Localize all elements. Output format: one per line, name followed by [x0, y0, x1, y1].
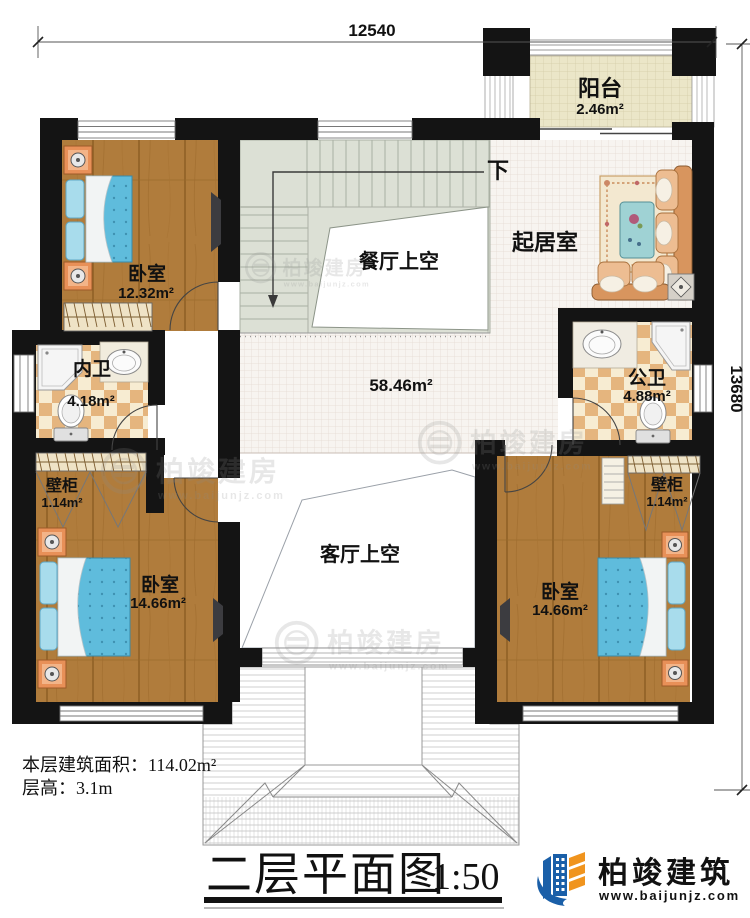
brand-url: www.baijunjz.com [598, 888, 740, 903]
brand-logo: 柏竣建筑 www.baijunjz.com [537, 852, 740, 906]
label-bath-private-area: 4.18m² [67, 393, 115, 410]
porch-roof [203, 667, 519, 845]
coffee-table [620, 202, 654, 258]
info-floor-height: 层高：3.1m [22, 778, 113, 798]
label-bath-private: 内卫 [73, 357, 111, 380]
end-table [668, 274, 694, 300]
title-underline-thin [204, 907, 504, 909]
label-bedroom3: 卧室 [541, 580, 579, 603]
window-stairs-top [318, 121, 412, 138]
nightstand [64, 146, 92, 174]
floor-plan-drawing: 柏竣建房 www.baijunjz.com 柏竣建房 www.baijunjz.… [0, 0, 750, 918]
label-bedroom2: 卧室 [141, 573, 179, 596]
nightstand [662, 660, 688, 686]
label-bedroom3-area: 14.66m² [532, 602, 588, 619]
label-bath-public: 公卫 [628, 367, 666, 389]
balcony-sliding-door [540, 129, 672, 134]
window-bedroom2-bottom [60, 706, 203, 721]
svg-text:柏竣建房: 柏竣建房 [282, 256, 366, 279]
label-bedroom1: 卧室 [128, 262, 166, 285]
nightstand [64, 262, 92, 290]
svg-text:www.baijunjz.com: www.baijunjz.com [283, 280, 370, 289]
dimension-right: 13680 [714, 39, 750, 795]
svg-text:柏竣建房: 柏竣建房 [470, 428, 588, 458]
brand-name: 柏竣建筑 [598, 856, 734, 890]
label-closet-right-area: 1.14m² [646, 494, 688, 509]
label-closet-left: 壁柜 [46, 476, 78, 495]
closet-right-shelf [628, 456, 700, 473]
window-bedroom1-top [78, 121, 175, 138]
drawing-scale: 1:50 [432, 856, 500, 898]
brand-logo-icon [537, 852, 585, 906]
dimension-top: 12540 [33, 21, 717, 58]
label-living: 起居室 [511, 230, 578, 255]
label-lounge-void: 客厅上空 [319, 542, 400, 566]
svg-text:www.baijunjz.com: www.baijunjz.com [471, 461, 592, 472]
linen-shelf [602, 458, 624, 504]
svg-text:柏竣建房: 柏竣建房 [327, 628, 445, 658]
label-closet-left-area: 1.14m² [41, 495, 83, 510]
svg-text:www.baijunjz.com: www.baijunjz.com [328, 661, 449, 672]
floor-plan-page: 柏竣建房 www.baijunjz.com 柏竣建房 www.baijunjz.… [0, 0, 750, 918]
nightstand [38, 528, 66, 556]
svg-text:www.baijunjz.com: www.baijunjz.com [157, 490, 285, 502]
tv-icon [211, 192, 221, 252]
svg-text:柏竣建房: 柏竣建房 [156, 455, 280, 487]
label-balcony: 阳台 [578, 76, 622, 101]
drawing-title: 二层平面图 [206, 849, 446, 900]
label-bedroom2-area: 14.66m² [130, 595, 186, 612]
living-room-furniture [592, 166, 694, 300]
dim-top-value: 12540 [348, 21, 395, 40]
label-dining-void: 餐厅上空 [359, 249, 439, 273]
info-floor-area: 本层建筑面积：114.02m² [22, 755, 216, 775]
label-bath-public-area: 4.88m² [623, 388, 671, 405]
nightstand [662, 532, 688, 558]
dim-right-value: 13680 [727, 365, 746, 412]
window-bath-private [14, 355, 34, 412]
label-stairs-down: 下 [487, 158, 509, 183]
wardrobe-bedroom1 [64, 303, 152, 331]
label-closet-right: 壁柜 [651, 475, 683, 494]
sink-icon [573, 322, 637, 368]
window-bath-public [694, 365, 712, 412]
title-underline [204, 897, 502, 903]
window-bedroom3-bottom [523, 706, 678, 721]
label-hall-area: 58.46m² [369, 376, 433, 395]
label-balcony-area: 2.46m² [576, 101, 624, 118]
nightstand [38, 660, 66, 688]
label-bedroom1-area: 12.32m² [118, 285, 174, 302]
